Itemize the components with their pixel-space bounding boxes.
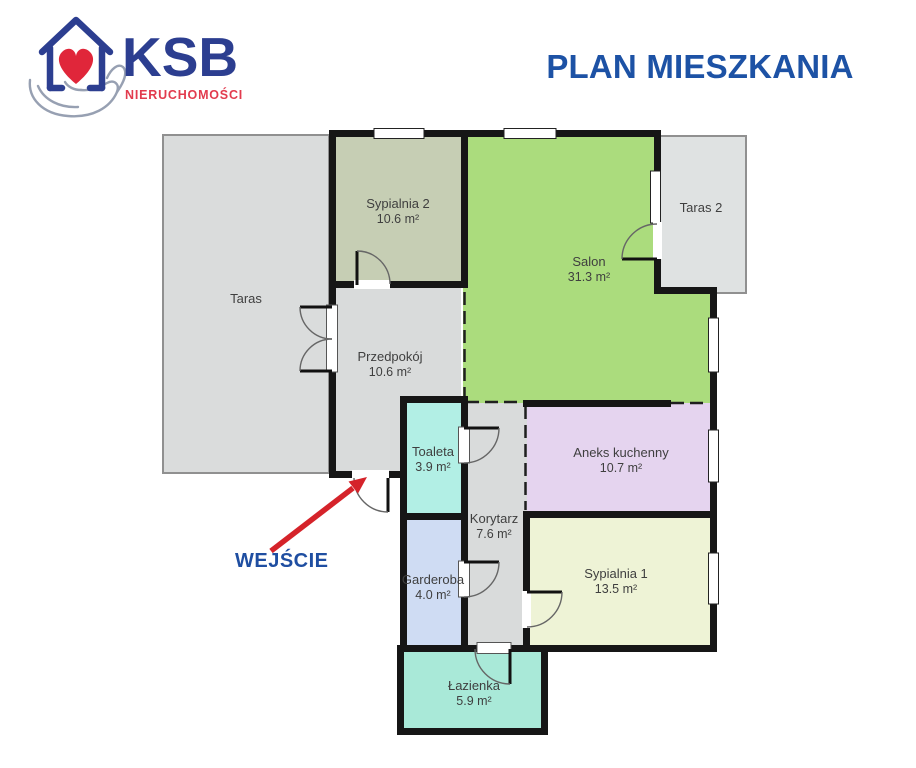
entrance-label: WEJŚCIE (235, 550, 329, 573)
floor-plan: Taras Taras 2 Sypialnia 2 10.6 m² Salon … (0, 0, 916, 768)
room-area-sypialnia1: 13.5 m² (595, 582, 637, 596)
room-label-toaleta: Toaleta (412, 444, 455, 459)
room-label-aneks: Aneks kuchenny (573, 445, 669, 460)
floor-plan-page: KSB NIERUCHOMOŚCI PLAN MIESZKANIA (0, 0, 916, 768)
room-area-przedpokoj: 10.6 m² (369, 365, 411, 379)
window-sypialnia2 (374, 129, 424, 139)
room-area-salon: 31.3 m² (568, 270, 610, 284)
room-label-lazienka: Łazienka (448, 678, 501, 693)
window-salon-top (504, 129, 556, 139)
room-label-garderoba: Garderoba (402, 572, 465, 587)
window-aneks (709, 430, 719, 482)
room-label-taras: Taras (230, 291, 262, 306)
room-label-korytarz: Korytarz (470, 511, 518, 526)
room-area-aneks: 10.7 m² (600, 461, 642, 475)
room-area-lazienka: 5.9 m² (456, 694, 491, 708)
window-salon-taras2 (651, 171, 661, 223)
entrance-door (352, 470, 389, 479)
room-area-garderoba: 4.0 m² (415, 588, 450, 602)
window-sypialnia1 (709, 553, 719, 604)
entrance-arrow-icon (271, 477, 367, 551)
room-area-sypialnia2: 10.6 m² (377, 212, 419, 226)
room-area-toaleta: 3.9 m² (415, 460, 450, 474)
room-label-sypialnia1: Sypialnia 1 (584, 566, 648, 581)
room-area-korytarz: 7.6 m² (476, 527, 511, 541)
room-label-przedpokoj: Przedpokój (357, 349, 422, 364)
room-label-sypialnia2: Sypialnia 2 (366, 196, 430, 211)
room-label-salon: Salon (572, 254, 605, 269)
room-label-taras2: Taras 2 (680, 200, 723, 215)
window-salon-right (709, 318, 719, 372)
